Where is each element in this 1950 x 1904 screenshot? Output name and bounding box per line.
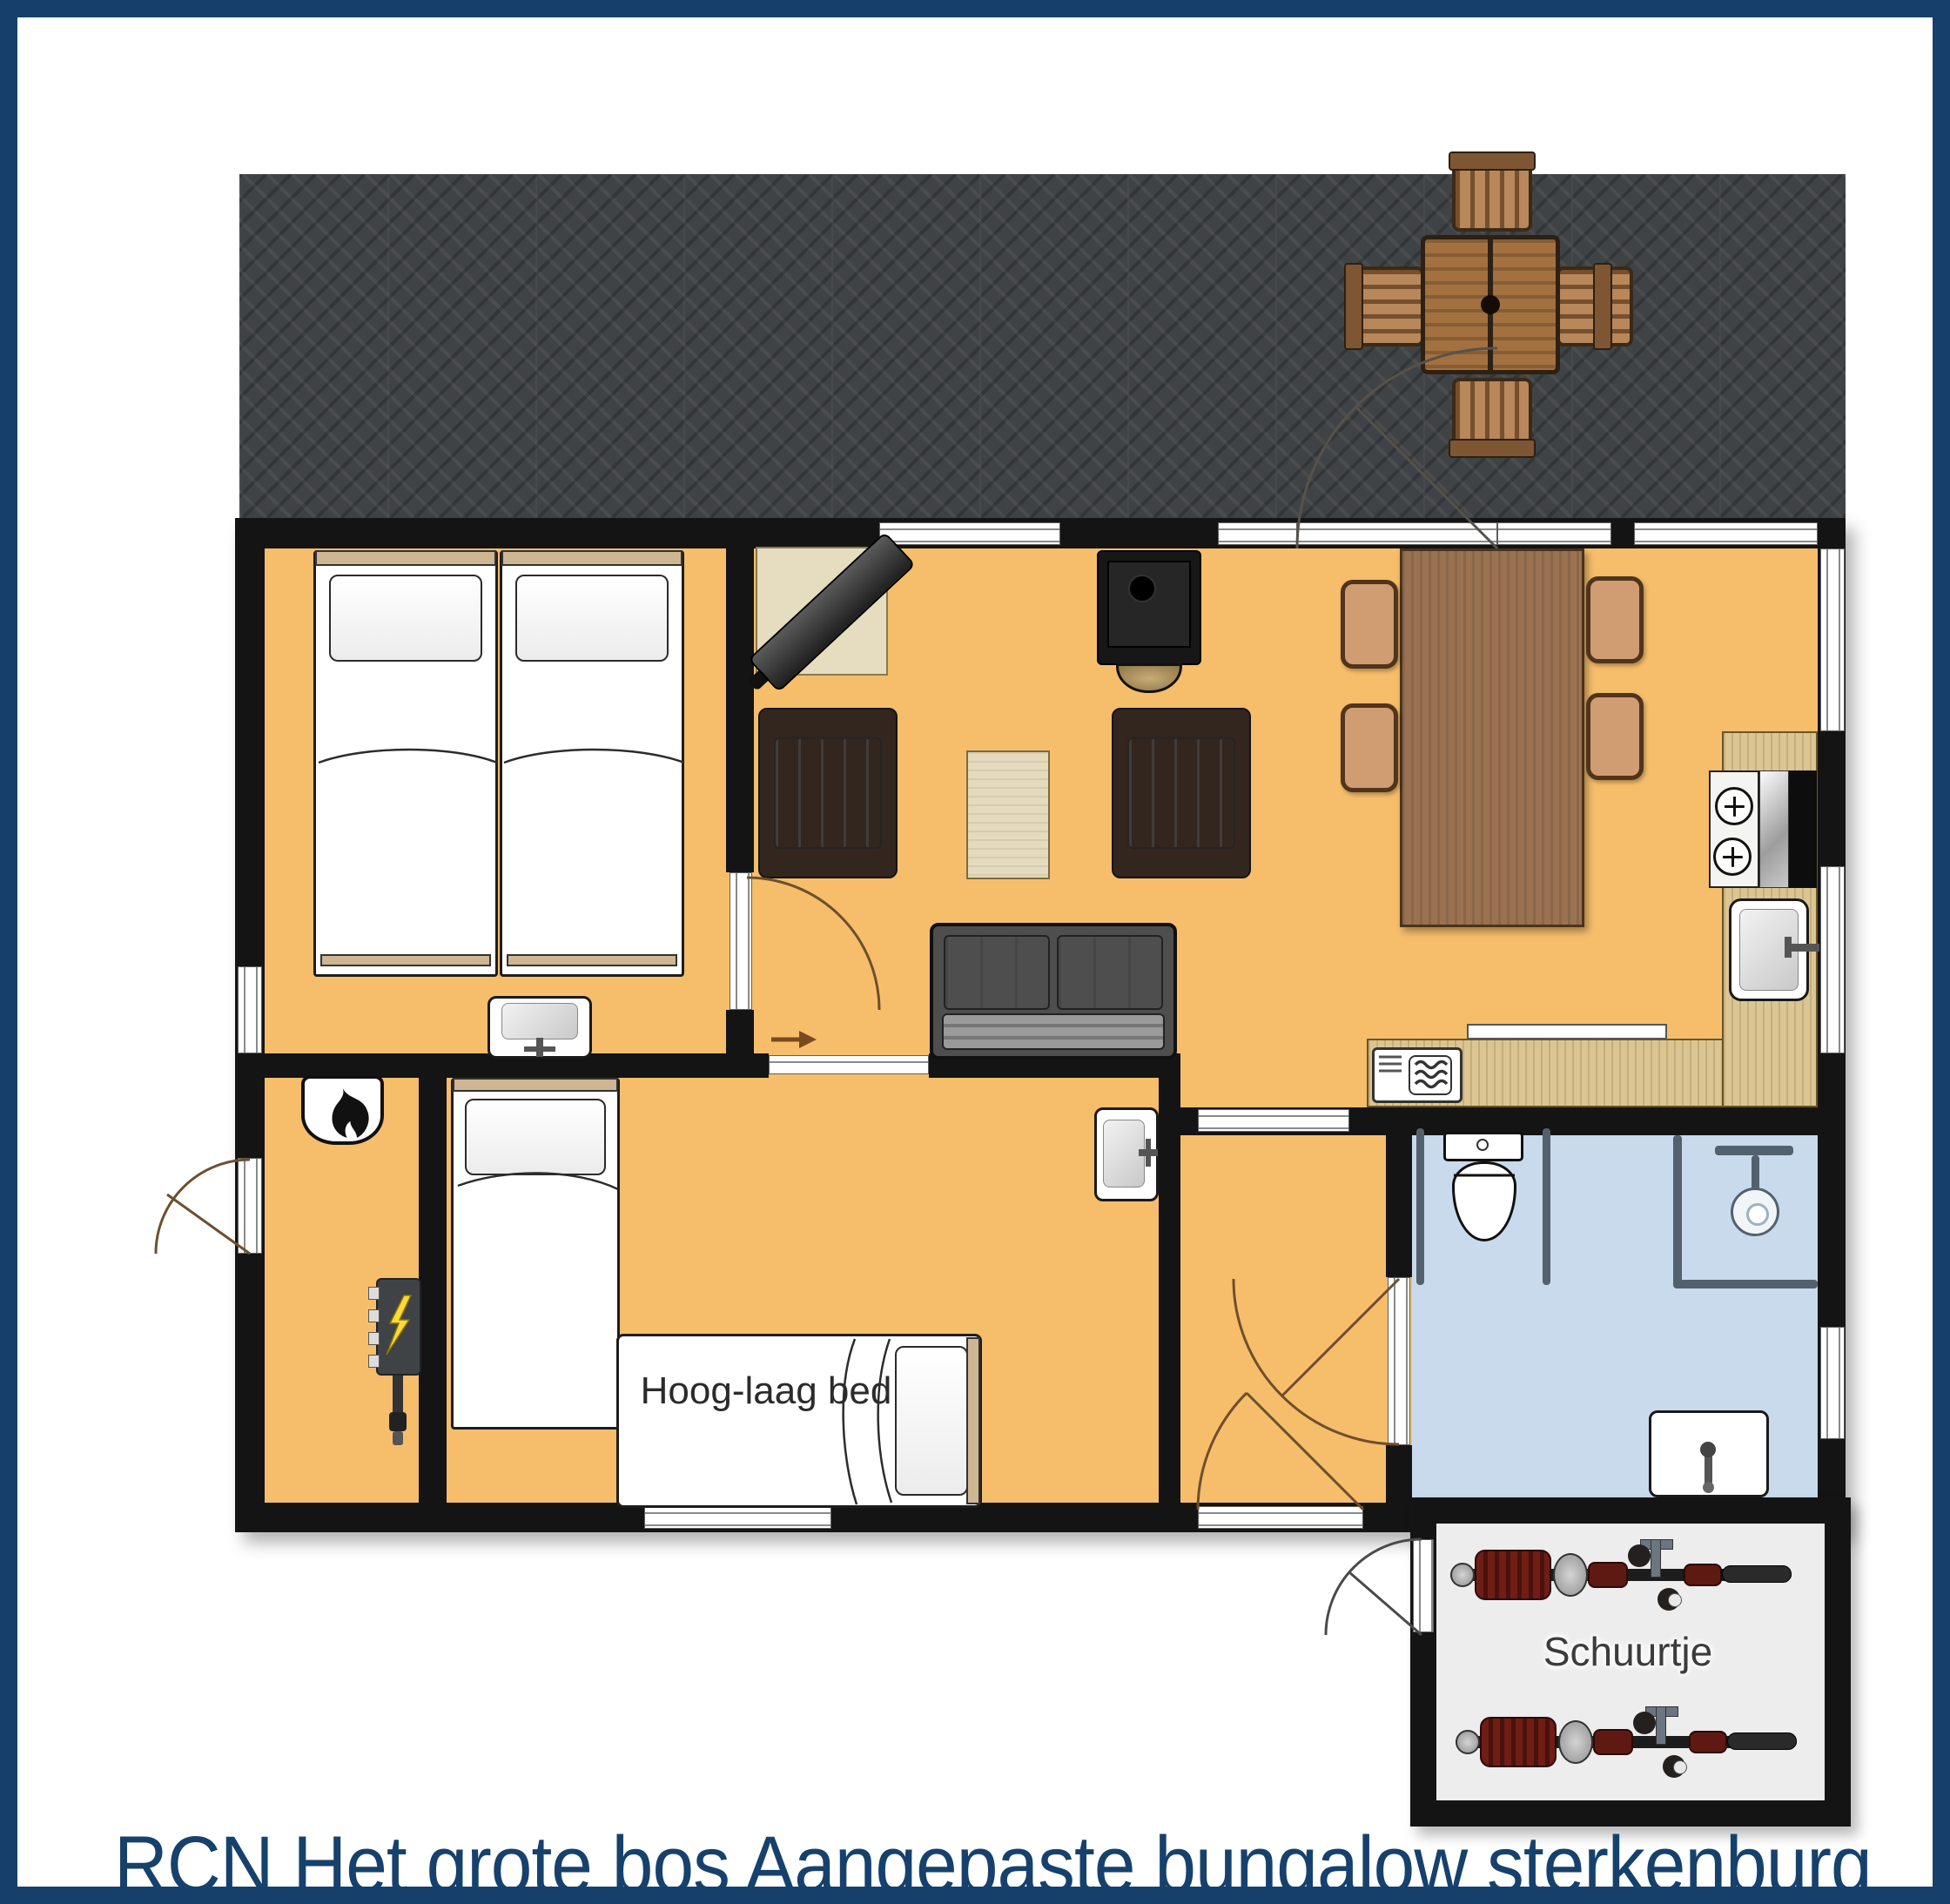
bike-midframe: [1689, 1731, 1727, 1753]
hoog-laag-bed-label: Hoog-laag bed: [627, 1367, 905, 1416]
coffee-table: [966, 750, 1050, 879]
bed-footboard: [320, 954, 491, 966]
bed-pillow: [515, 575, 669, 662]
bike-saddle: [1553, 1553, 1588, 1597]
panel-connector: [368, 1309, 380, 1322]
bed-pillow: [465, 1099, 606, 1175]
dining-chair: [1586, 576, 1644, 663]
sofa-cushion: [944, 935, 1050, 1010]
window-bedroom2-south: [644, 1506, 831, 1529]
grab-bar: [1543, 1128, 1550, 1285]
window-dining-east: [1820, 548, 1845, 731]
patio-table: [1421, 235, 1560, 374]
stove-flue-circle: [1128, 575, 1156, 602]
window-bathroom-east: [1820, 1327, 1845, 1439]
bike-saddle: [1558, 1720, 1593, 1764]
burner-icon: [1713, 838, 1752, 876]
bed-headboard: [501, 550, 682, 566]
faucet-icon: [1790, 944, 1819, 952]
bed-footboard: [507, 954, 677, 966]
shower-arm: [1715, 1146, 1793, 1155]
dining-chair: [1341, 703, 1398, 792]
sofa-cushion: [1057, 935, 1163, 1010]
window-dining-north-1: [1497, 522, 1611, 545]
utility-exterior-door: [238, 1158, 262, 1254]
burner-icon: [1715, 787, 1753, 825]
shower-head-swirl: [1746, 1203, 1769, 1226]
bedroom1-door-leaf: [730, 872, 752, 1010]
cooktop-steel: [1759, 770, 1789, 888]
armchair-cushion: [774, 737, 882, 849]
faucet-icon: [1785, 937, 1792, 958]
bike-front-cap: [1456, 1730, 1480, 1754]
wall-utility-east: [419, 1078, 447, 1503]
sliding-door: [769, 1055, 929, 1074]
counter-shelf: [1467, 1024, 1667, 1039]
bed-pillow: [329, 575, 482, 662]
wall-bathroom-west-lower: [1386, 1445, 1412, 1503]
bike-body: [1480, 1717, 1557, 1767]
panel-connector: [368, 1287, 380, 1300]
sofa-backrest: [942, 1013, 1165, 1050]
shower-screen-vertical: [1673, 1135, 1682, 1287]
window-bedroom1-west: [238, 966, 262, 1053]
patio-chair-back: [1449, 439, 1536, 458]
cooktop-black: [1789, 770, 1817, 888]
bike-front-cap: [1450, 1563, 1475, 1587]
umbrella-hole: [1481, 295, 1500, 314]
bike-body: [1475, 1550, 1551, 1600]
bike-steer-tube: [1656, 1706, 1666, 1745]
back-exterior-door: [1198, 1506, 1363, 1529]
shed-door-opening: [1413, 1539, 1434, 1632]
schuurtje-label: Schuurtje: [1523, 1628, 1732, 1675]
bed-pillow: [895, 1346, 968, 1496]
bathroom-door-opening: [1388, 1277, 1410, 1445]
grab-bar: [1416, 1128, 1424, 1285]
bed-headboard: [966, 1337, 980, 1504]
bike-midframe: [1588, 1562, 1628, 1588]
bike-rear-wheel: [1727, 1732, 1797, 1750]
terrace-door: [1297, 522, 1497, 545]
bed-headboard: [315, 550, 496, 566]
page-title-text: RCN Het grote bos Aangepaste bungalow st…: [114, 1820, 1872, 1904]
patio-chair-back: [1449, 151, 1536, 171]
dining-chair: [1341, 580, 1398, 669]
bike-midframe: [1593, 1729, 1633, 1755]
wood-stove-top: [1107, 561, 1191, 648]
faucet-knob: [1703, 1482, 1714, 1493]
sofa: [930, 923, 1177, 1060]
window-dining-north-2: [1634, 522, 1818, 545]
microwave-door: [1409, 1055, 1452, 1095]
bed-headboard: [453, 1078, 618, 1092]
faucet-icon: [524, 1046, 555, 1052]
window-living-north-2: [1218, 522, 1297, 545]
faucet-knob: [1700, 1442, 1716, 1457]
panel-cable: [393, 1376, 403, 1414]
page-title: RCN Het grote bos Aangepaste bungalow st…: [17, 1816, 1950, 1904]
window-kitchen-east: [1820, 866, 1845, 1053]
window-living-north-1: [879, 522, 1060, 545]
bike-pedal: [1628, 1544, 1651, 1567]
wall-bedroom1-east-upper: [726, 548, 754, 872]
bicycle: [1456, 1703, 1797, 1781]
dining-table: [1400, 548, 1584, 927]
toilet-button: [1476, 1139, 1489, 1151]
bike-reflector: [1668, 1593, 1682, 1607]
bicycle: [1450, 1536, 1792, 1614]
bike-reflector: [1673, 1760, 1687, 1774]
hall-passage-opening: [1198, 1109, 1349, 1132]
bike-steer-tube: [1651, 1539, 1661, 1578]
panel-plug: [389, 1412, 407, 1431]
wall-bedroom2-east: [1159, 1053, 1180, 1503]
armchair-cushion: [1127, 737, 1235, 849]
faucet-icon: [1146, 1139, 1151, 1167]
patio-chair-back: [1344, 263, 1363, 350]
bike-pedal: [1633, 1712, 1656, 1734]
panel-connector: [368, 1355, 380, 1368]
floorplan-canvas: Hoog-laag bed Schuurtje: [0, 0, 1950, 1904]
bike-midframe: [1684, 1564, 1722, 1586]
patio-chair-back: [1593, 263, 1612, 350]
boiler: [301, 1075, 384, 1145]
panel-connector: [368, 1332, 380, 1345]
wall-bathroom-west-upper: [1386, 1135, 1412, 1277]
washbasin-bowl: [501, 1003, 578, 1039]
dining-chair: [1586, 693, 1644, 780]
shower-screen-horizontal: [1673, 1280, 1818, 1288]
panel-plug: [393, 1431, 403, 1445]
bike-rear-wheel: [1722, 1565, 1792, 1583]
electrical-panel: [376, 1278, 421, 1376]
